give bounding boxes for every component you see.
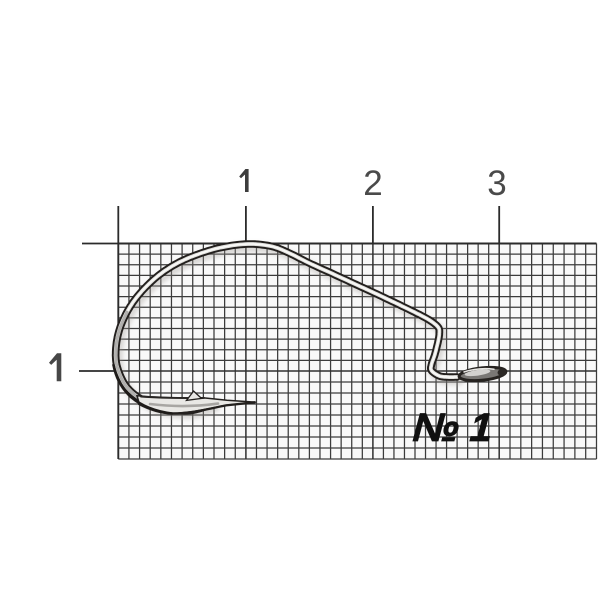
- svg-text:2: 2: [363, 164, 382, 203]
- svg-text:№ 1: № 1: [412, 406, 494, 450]
- svg-text:3: 3: [487, 164, 506, 203]
